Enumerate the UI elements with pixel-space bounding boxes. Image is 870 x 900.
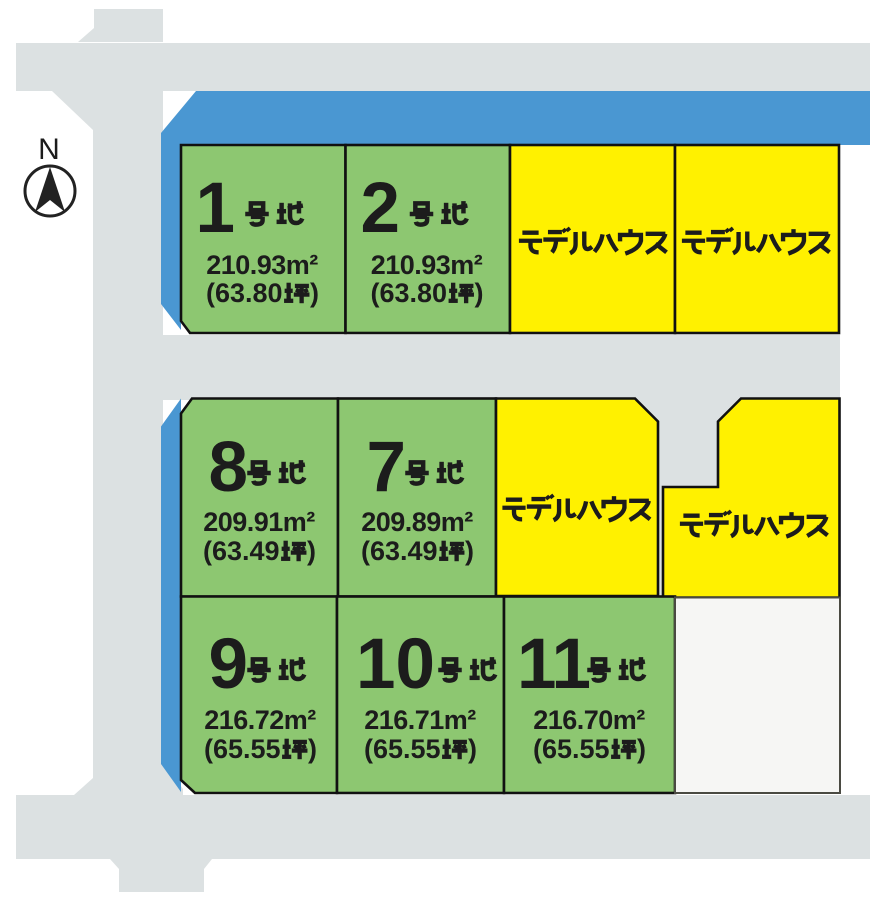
svg-text:): ) (475, 278, 484, 308)
svg-text:2: 2 (361, 169, 401, 248)
svg-text:(63.49: (63.49 (361, 536, 438, 566)
svg-text:): ) (465, 536, 474, 566)
svg-text:(63.80: (63.80 (206, 278, 283, 308)
svg-text:(65.55: (65.55 (364, 734, 441, 764)
svg-text:216.72m²: 216.72m² (204, 705, 316, 735)
svg-text:210.93m²: 210.93m² (371, 250, 483, 280)
svg-text:8: 8 (209, 428, 249, 507)
svg-text:(65.55: (65.55 (204, 734, 281, 764)
svg-text:): ) (310, 278, 319, 308)
svg-text:): ) (307, 536, 316, 566)
svg-text:1: 1 (196, 169, 236, 248)
svg-text:209.91m²: 209.91m² (203, 507, 315, 537)
svg-text:209.89m²: 209.89m² (361, 507, 473, 537)
svg-text:(65.55: (65.55 (533, 734, 610, 764)
svg-text:216.71m²: 216.71m² (364, 705, 476, 735)
svg-text:7: 7 (367, 428, 407, 507)
svg-text:216.70m²: 216.70m² (533, 705, 645, 735)
svg-text:): ) (468, 734, 477, 764)
svg-text:): ) (637, 734, 646, 764)
svg-text:N: N (38, 133, 60, 166)
svg-text:210.93m²: 210.93m² (206, 250, 318, 280)
svg-text:): ) (308, 734, 317, 764)
svg-text:(63.49: (63.49 (203, 536, 280, 566)
svg-text:(63.80: (63.80 (371, 278, 448, 308)
svg-text:11: 11 (517, 625, 590, 704)
svg-text:9: 9 (209, 625, 249, 704)
svg-text:10: 10 (356, 625, 435, 704)
